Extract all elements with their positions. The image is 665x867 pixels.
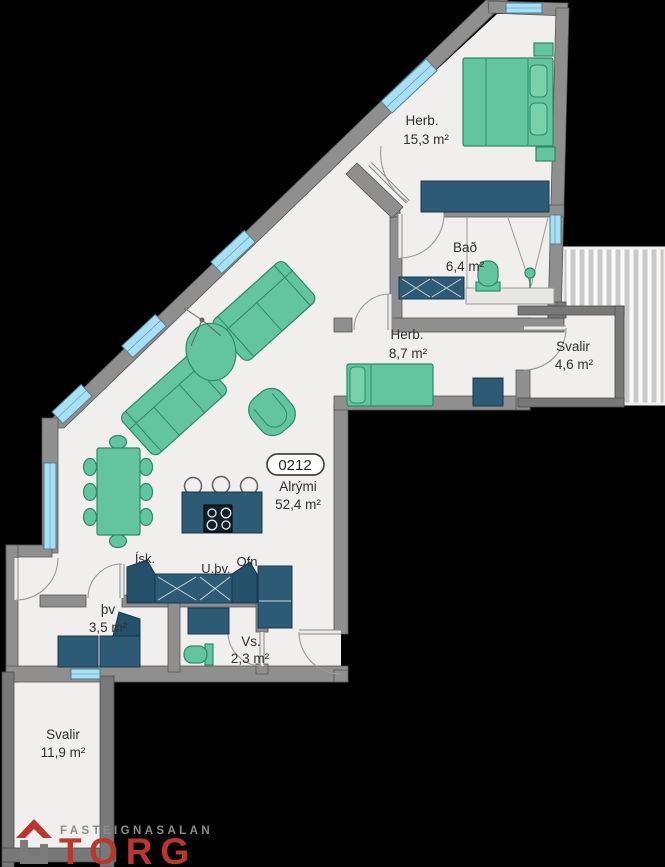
label-fridge: Ísk.: [135, 551, 155, 566]
wall-laundry-wc-divider: [168, 600, 180, 672]
nightstand: [534, 43, 553, 56]
room-label-vs-name: Vs.: [241, 634, 261, 649]
window-left: [44, 463, 56, 549]
washing-machine: [58, 636, 98, 667]
wall-balcony-east-top: [518, 306, 624, 315]
floor-plan-page: Herb. 15,3 m² Bað 6,4 m² Herb. 8,7 m² Sv…: [0, 0, 665, 867]
pillow: [530, 65, 547, 97]
room-label-alrymi-name: Alrými: [279, 479, 317, 494]
wall-hall-right-stub: [334, 670, 348, 682]
oven-column: [258, 566, 292, 628]
bar-stool: [213, 477, 230, 494]
nightstand: [536, 147, 555, 161]
room-label-thv-name: þv: [101, 602, 116, 617]
room-label-vs-area: 2,3 m²: [231, 651, 270, 666]
room-label-thv-area: 3,5 m²: [89, 620, 128, 635]
wc-toilet: [184, 644, 213, 665]
wall-balcony-south-left: [2, 672, 14, 867]
label-dishwasher: U.þv.: [201, 561, 230, 576]
dining-table: [97, 448, 140, 535]
window-top: [506, 3, 542, 13]
room-label-herb1-area: 15,3 m²: [403, 132, 449, 147]
wall-bath-bottom-a: [334, 318, 352, 332]
pillow: [530, 103, 547, 135]
wall-hall-right: [334, 404, 348, 634]
kitchen-island: [182, 477, 262, 534]
desk: [473, 378, 503, 406]
wall-laundry-top-a: [40, 595, 86, 607]
dryer: [100, 636, 140, 667]
room-label-svalir-east-name: Svalir: [556, 339, 590, 354]
room-label-svalir-south-name: Svalir: [46, 727, 80, 742]
room-label-svalir-east-area: 4,6 m²: [555, 357, 594, 372]
room-label-herb1-name: Herb.: [405, 113, 438, 128]
wall-balcony-east-right: [615, 306, 624, 407]
wc-cabinet: [188, 608, 229, 634]
room-label-herb2-area: 8,7 m²: [389, 346, 428, 361]
pillow: [350, 367, 365, 403]
room-label-bad-name: Bað: [453, 240, 477, 255]
wall-balcony-east-bottom: [518, 398, 624, 407]
wardrobe: [421, 181, 549, 212]
bathroom-vanity: [399, 277, 464, 299]
unit-number: 0212: [278, 457, 311, 474]
room-label-bad-area: 6,4 m²: [446, 259, 485, 274]
label-oven: Ofn: [237, 554, 258, 569]
room-label-alrymi-area: 52,4 m²: [275, 497, 321, 512]
room-label-svalir-south-area: 11,9 m²: [41, 745, 86, 760]
fridge: [127, 560, 155, 603]
logo-brand: TORG: [59, 831, 197, 867]
window-bath-right: [550, 215, 561, 244]
room-label-herb2-name: Herb.: [390, 327, 423, 342]
floor-plan-drawing: Herb. 15,3 m² Bað 6,4 m² Herb. 8,7 m² Sv…: [0, 0, 665, 867]
window-laundry: [71, 669, 100, 679]
